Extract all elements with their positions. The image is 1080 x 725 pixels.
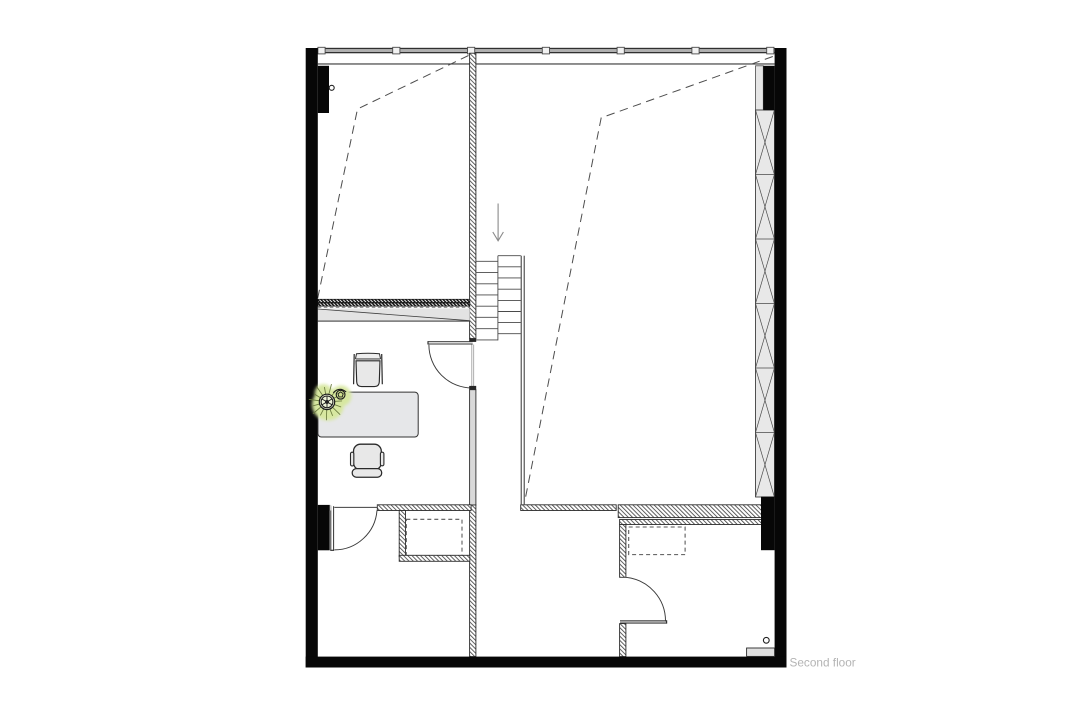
svg-text:Second floor: Second floor [790, 656, 856, 670]
